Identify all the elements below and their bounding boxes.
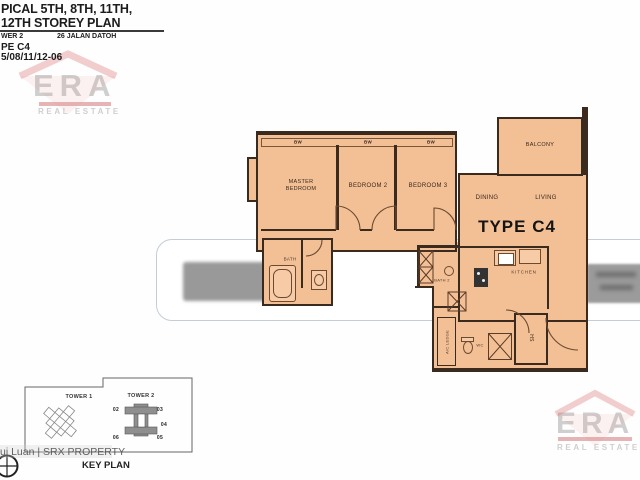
- bath2-label: BATH 2: [434, 278, 450, 283]
- plan-title-line2: 12TH STOREY PLAN: [1, 16, 120, 30]
- corridor-wall-seg2: [360, 229, 372, 231]
- window-sill-strip: [261, 138, 453, 147]
- bath2-sink: [444, 266, 454, 276]
- era-logo-text-top: ERA: [33, 68, 116, 104]
- keyplan-unit-05: 05: [157, 435, 163, 441]
- dining-label: DINING: [476, 195, 499, 201]
- keyplan-unit-03: 03: [157, 407, 163, 413]
- kitchen-right-wall: [547, 247, 549, 309]
- bath-sink: [314, 274, 324, 286]
- bath-divider-wall: [301, 240, 303, 288]
- right-exterior-wall: [582, 107, 588, 175]
- era-logo-subtext-top: REAL ESTATE: [38, 107, 121, 116]
- srx-watermark-text: ui Luan | SRX PROPERTY: [0, 446, 125, 458]
- unit-type-label: TYPE C4: [478, 217, 556, 237]
- bath-label: BATH: [284, 257, 297, 262]
- era-logo-bar-bottom: [558, 437, 632, 441]
- living-label: LIVING: [535, 195, 556, 201]
- window-marker-1: BW: [294, 140, 302, 145]
- keyplan-tower1-label: TOWER 1: [65, 394, 92, 400]
- tower-label: WER 2: [1, 33, 23, 40]
- stove-burner-2: [482, 279, 485, 282]
- kitchen-counter-2: [519, 249, 541, 264]
- wc-label: WC: [476, 343, 483, 348]
- title-underline: [0, 30, 164, 32]
- ac-ledge-label: A/C LEDGE: [445, 330, 450, 354]
- window-marker-2: BW: [364, 140, 372, 145]
- keyplan-boundary: [25, 378, 192, 452]
- keyplan-unit-04: 04: [161, 422, 167, 428]
- era-logo-subtext-bottom: REAL ESTATE: [557, 443, 640, 452]
- bedroom3-label: BEDROOM 3: [409, 183, 448, 189]
- stove: [474, 268, 488, 287]
- corridor-wall-seg3: [396, 229, 434, 231]
- blurred-text-line2: [600, 285, 633, 290]
- bay-window-notch: [247, 157, 258, 202]
- compass-icon: [0, 456, 18, 477]
- blurred-text-line1: [596, 272, 636, 277]
- era-logo-bar-top: [39, 102, 111, 106]
- keyplan-tower2-footprint: [125, 404, 157, 436]
- wall-master-bed2: [336, 145, 339, 230]
- bedroom2-label: BEDROOM 2: [349, 183, 388, 189]
- kitchen-label: KITCHEN: [511, 270, 536, 275]
- kitchen-sink: [498, 253, 514, 265]
- stove-burner-1: [477, 272, 480, 275]
- blurred-region-right: [587, 264, 640, 303]
- master-bedroom-label-1: MASTER: [289, 179, 314, 185]
- master-bedroom-label-2: BEDROOM: [286, 186, 317, 192]
- keyplan-tower1-footprint: [35, 397, 86, 448]
- window-marker-3: BW: [427, 140, 435, 145]
- wc-toilet: [463, 341, 473, 354]
- floorplan-page: PICAL 5TH, 8TH, 11TH, 12TH STOREY PLAN W…: [0, 0, 640, 480]
- keyplan-tower2-label: TOWER 2: [127, 393, 154, 399]
- kitchen-top-wall: [459, 246, 549, 248]
- wall-bed2-bed3: [394, 145, 397, 230]
- keyplan-unit-02: 02: [113, 407, 119, 413]
- bathtub-inner: [273, 269, 292, 298]
- balcony-label: BALCONY: [526, 142, 554, 148]
- era-logo-text-bottom: ERA: [556, 407, 634, 441]
- corridor-notch: [415, 286, 434, 311]
- address-label: 26 JALAN DATOH: [57, 33, 116, 40]
- keyplan-title: KEY PLAN: [82, 460, 130, 471]
- hs-label: HS: [528, 334, 534, 342]
- corridor-wall-seg1: [261, 229, 336, 231]
- plan-title-line1: PICAL 5TH, 8TH, 11TH,: [1, 2, 132, 16]
- unit-numbers-label: 5/08/11/12-06: [1, 52, 62, 63]
- bath2-top-wall: [417, 245, 460, 248]
- keyplan-unit-06: 06: [113, 435, 119, 441]
- bath2-left-wall: [417, 245, 420, 286]
